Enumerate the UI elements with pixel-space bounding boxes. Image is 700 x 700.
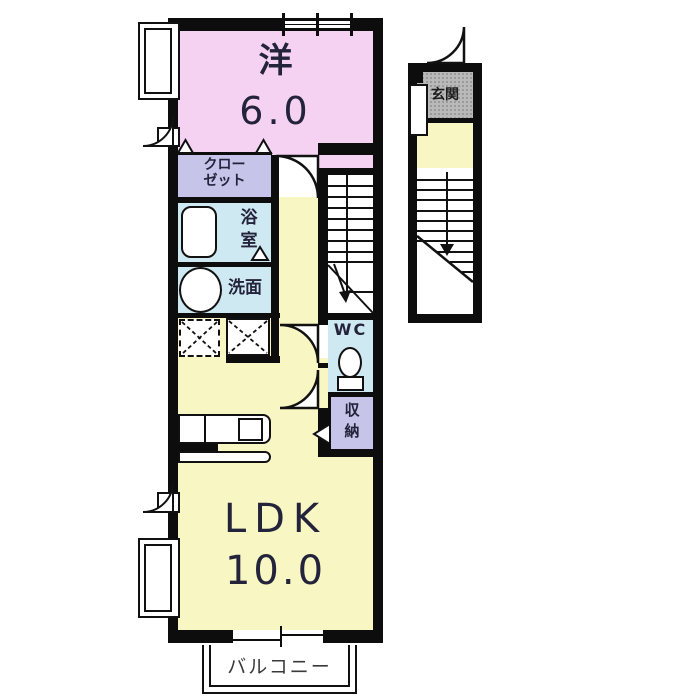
label-wc: WC [328, 321, 373, 339]
wall-hall-stairs-a [318, 168, 328, 325]
bay-window-top-inner [144, 28, 172, 94]
label-entrance: 玄関 [417, 87, 473, 103]
window-top-tick-l [282, 13, 285, 36]
label-western-name: 洋 [178, 42, 373, 81]
wall-western-bottom [318, 143, 383, 155]
wall-stairs-wc [318, 313, 383, 320]
wall-bath-bottom [168, 262, 272, 267]
kitchen-sink [238, 418, 263, 441]
label-closet-line2: ゼット [204, 173, 246, 189]
appliance-square [226, 318, 270, 356]
wall-stairs-top [318, 168, 383, 175]
window-balcony-tick [280, 626, 283, 647]
wall-closet-top-line [178, 152, 272, 155]
wall-kitchen-stub [226, 356, 280, 363]
door-arc-entrance [427, 27, 464, 63]
label-storage: 収 納 [331, 400, 373, 442]
wall-closet-hall [271, 155, 279, 357]
kitchen-counter-divider [204, 414, 206, 444]
hall-doorswing-area [279, 155, 318, 197]
label-ldk-size: 10.0 [178, 548, 373, 594]
casement-window-bottom-leaf [157, 492, 180, 513]
kitchen-counter-bottom [178, 451, 271, 463]
label-washroom: 洗面 [218, 279, 272, 299]
window-top-tick-r [350, 13, 353, 36]
wall-wc-bottom [328, 392, 383, 397]
wall-storage-bottom [318, 449, 383, 457]
label-ldk-name: LDK [178, 496, 373, 542]
washbasin [179, 267, 222, 313]
label-balcony: バルコニー [202, 657, 357, 679]
label-western-size: 6.0 [178, 90, 373, 134]
window-balcony [233, 630, 323, 643]
casement-window-top-leaf [157, 127, 180, 147]
window-balcony-line-right [281, 634, 323, 637]
room-western-fill-strip [318, 155, 373, 168]
toilet-bowl [338, 347, 362, 378]
toilet-tank [337, 376, 364, 391]
wall-hall-stairs-b [318, 363, 328, 368]
entry-corner-block [410, 71, 423, 83]
laundry-pan-square [179, 319, 220, 357]
label-bath-char2: 室 [241, 231, 258, 251]
bathtub [181, 206, 217, 258]
label-bath: 浴 室 [234, 207, 264, 253]
label-storage-char1: 収 [344, 401, 359, 419]
window-balcony-line-left [233, 639, 281, 642]
label-bath-char1: 浴 [241, 208, 258, 228]
label-closet: クロー ゼット [178, 157, 271, 189]
floor-plan: 洋 6.0 クロー ゼット 浴 室 洗面 WC 収 納 LDK 10.0 玄関 … [0, 0, 700, 700]
label-storage-char2: 納 [344, 422, 359, 440]
wall-right [373, 18, 383, 643]
stairs-main-fill [328, 175, 373, 313]
bay-window-bottom-inner [144, 544, 172, 612]
window-top-tick-m [316, 13, 319, 36]
wall-closet-bottom [168, 197, 272, 203]
label-closet-line1: クロー [204, 157, 246, 173]
